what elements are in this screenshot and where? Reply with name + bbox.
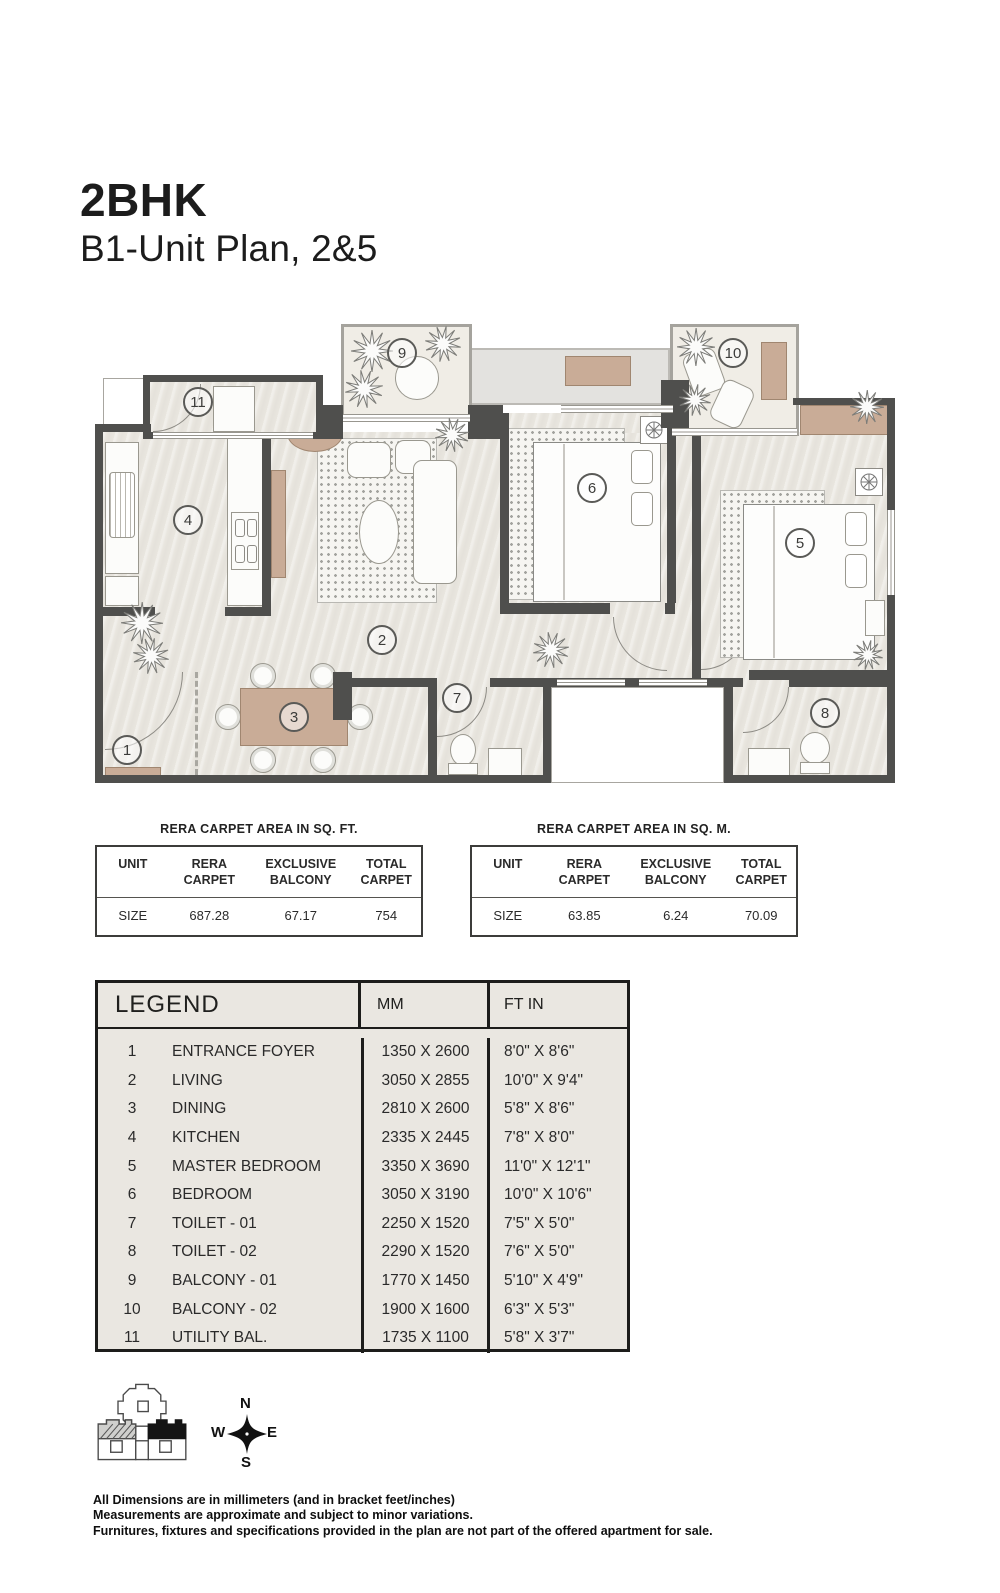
legend-row-mm: 3050 X 2855 xyxy=(361,1067,490,1096)
legend-row-number: 2 xyxy=(112,1072,152,1090)
plant-icon xyxy=(677,328,715,366)
wall-segment xyxy=(103,424,151,432)
legend-row-mm: 1770 X 1450 xyxy=(361,1267,490,1296)
wall-segment xyxy=(143,375,323,382)
legend-row: 5MASTER BEDROOM3350 X 369011'0" X 12'1" xyxy=(98,1152,627,1181)
coffee-table xyxy=(359,500,399,564)
table-row: SIZE 63.85 6.24 70.09 xyxy=(472,897,796,935)
legend-row-mm: 2810 X 2600 xyxy=(361,1095,490,1124)
room-label-9: 9 xyxy=(387,338,417,368)
cell-unit: SIZE xyxy=(97,908,169,923)
legend-row-number: 9 xyxy=(112,1272,152,1290)
legend-row-name: UTILITY BAL. xyxy=(152,1329,361,1347)
disclaimer: All Dimensions are in millimeters (and i… xyxy=(93,1493,713,1539)
hob-burner xyxy=(235,519,245,537)
legend-col-ftin: FT IN xyxy=(490,983,627,1027)
legend-row-ftin: 6'3" X 5'3" xyxy=(490,1301,627,1319)
legend-row: 10BALCONY - 021900 X 16006'3" X 5'3" xyxy=(98,1295,627,1324)
dining-chair xyxy=(250,663,276,689)
hob-burner xyxy=(235,545,245,563)
legend-row: 7TOILET - 012250 X 15207'5" X 5'0" xyxy=(98,1210,627,1239)
room-label-8: 8 xyxy=(810,698,840,728)
compass-south-label: S xyxy=(241,1454,251,1471)
wall-segment xyxy=(887,398,895,510)
col-header-unit: UNIT xyxy=(472,856,544,889)
legend-row-mm: 1900 X 1600 xyxy=(361,1295,490,1324)
legend-row-number: 11 xyxy=(112,1329,152,1347)
toilet-sink xyxy=(488,748,522,776)
disclaimer-line-3: Furnitures, fixtures and specifications … xyxy=(93,1524,713,1539)
disclaimer-line-1: All Dimensions are in millimeters (and i… xyxy=(93,1493,713,1508)
legend-row-ftin: 5'8" X 3'7" xyxy=(490,1329,627,1347)
toilet-sink xyxy=(748,748,790,778)
area-table-sqft-title: RERA CARPET AREA IN SQ. FT. xyxy=(95,822,423,836)
cell-rera-carpet: 63.85 xyxy=(544,908,626,923)
legend-row: 3DINING2810 X 26005'8" X 8'6" xyxy=(98,1095,627,1124)
legend-row: 6BEDROOM3050 X 319010'0" X 10'6" xyxy=(98,1181,627,1210)
pillow xyxy=(631,450,653,484)
legend-row-mm: 2250 X 1520 xyxy=(361,1210,490,1239)
plant-icon xyxy=(425,326,461,362)
ceiling-fan-icon xyxy=(855,468,883,496)
hob-burner xyxy=(247,545,257,563)
window xyxy=(561,405,673,413)
dining-chair xyxy=(215,704,241,730)
compass-star-icon xyxy=(225,1412,269,1456)
deck-loveseat xyxy=(565,356,631,386)
hob-burner xyxy=(247,519,257,537)
external-void xyxy=(551,687,724,783)
kitchen-hob xyxy=(231,512,259,570)
area-table-sqm-title: RERA CARPET AREA IN SQ. M. xyxy=(470,822,798,836)
legend-row: 11UTILITY BAL.1735 X 11005'8" X 3'7" xyxy=(98,1324,627,1353)
armchair xyxy=(347,442,391,478)
tv-unit xyxy=(271,470,286,578)
floor-plan-canvas: 1234567891011 xyxy=(95,320,905,790)
cell-unit: SIZE xyxy=(472,908,544,923)
legend-row-name: TOILET - 02 xyxy=(152,1243,361,1261)
wall-segment xyxy=(665,603,675,614)
legend-row-name: BALCONY - 01 xyxy=(152,1272,361,1290)
plant-icon xyxy=(435,418,469,452)
washing-machine xyxy=(213,386,255,432)
legend-row-name: BEDROOM xyxy=(152,1186,361,1204)
dining-chair xyxy=(250,747,276,773)
legend-row-mm: 2335 X 2445 xyxy=(361,1124,490,1153)
legend-row-number: 5 xyxy=(112,1158,152,1176)
room-label-4: 4 xyxy=(173,505,203,535)
room-label-1: 1 xyxy=(112,735,142,765)
legend-row-ftin: 5'10" X 4'9" xyxy=(490,1272,627,1290)
table-row: SIZE 687.28 67.17 754 xyxy=(97,897,421,935)
col-header-total-carpet: TOTAL CARPET xyxy=(351,856,421,889)
compass-west-label: W xyxy=(211,1424,225,1441)
wall-segment xyxy=(316,382,323,439)
pillow xyxy=(845,512,867,546)
legend-row-number: 7 xyxy=(112,1215,152,1233)
area-table-sqft: RERA CARPET AREA IN SQ. FT. UNIT RERA CA… xyxy=(95,822,423,937)
cell-exclusive-balcony: 6.24 xyxy=(625,908,726,923)
wall-segment xyxy=(724,678,743,687)
compass-rose: N E S W xyxy=(205,1395,291,1475)
cell-exclusive-balcony: 67.17 xyxy=(250,908,351,923)
legend-row: 2LIVING3050 X 285510'0" X 9'4" xyxy=(98,1067,627,1096)
legend-row-name: BALCONY - 02 xyxy=(152,1301,361,1319)
col-header-unit: UNIT xyxy=(97,856,169,889)
wall-segment xyxy=(692,436,701,676)
toilet-wc-tank xyxy=(448,763,478,775)
legend-row-number: 4 xyxy=(112,1129,152,1147)
toilet-wc-tank xyxy=(800,762,830,774)
plant-icon xyxy=(345,370,383,408)
col-header-total-carpet: TOTAL CARPET xyxy=(726,856,796,889)
wall-segment xyxy=(724,687,733,783)
col-header-rera-carpet: RERA CARPET xyxy=(169,856,251,889)
legend-row: 1ENTRANCE FOYER1350 X 26008'0" X 8'6" xyxy=(98,1038,627,1067)
page-subtitle: B1-Unit Plan, 2&5 xyxy=(80,228,378,270)
wall-segment xyxy=(731,775,895,783)
plant-icon xyxy=(853,640,883,670)
compass-north-label: N xyxy=(240,1395,251,1412)
window xyxy=(639,679,707,686)
legend-row-mm: 1735 X 1100 xyxy=(361,1324,490,1353)
room-label-2: 2 xyxy=(367,625,397,655)
legend-rows: 1ENTRANCE FOYER1350 X 26008'0" X 8'6"2LI… xyxy=(98,1029,627,1353)
legend-col-mm: MM xyxy=(361,983,490,1027)
wall-segment xyxy=(667,413,676,603)
cell-total-carpet: 70.09 xyxy=(726,908,796,923)
legend-row-name: LIVING xyxy=(152,1072,361,1090)
toilet-wc xyxy=(450,734,476,766)
area-table-sqm: RERA CARPET AREA IN SQ. M. UNIT RERA CAR… xyxy=(470,822,798,937)
window xyxy=(887,510,895,595)
legend-row-mm: 3050 X 3190 xyxy=(361,1181,490,1210)
legend-row-ftin: 10'0" X 9'4" xyxy=(490,1072,627,1090)
wall-segment xyxy=(543,687,551,783)
legend-row-mm: 1350 X 2600 xyxy=(361,1038,490,1067)
dining-chair xyxy=(310,747,336,773)
window xyxy=(672,428,797,436)
legend-row-ftin: 5'8" X 8'6" xyxy=(490,1100,627,1118)
window xyxy=(557,679,625,686)
blanket-line xyxy=(563,444,565,600)
col-header-rera-carpet: RERA CARPET xyxy=(544,856,626,889)
sofa xyxy=(413,460,457,584)
legend-row-name: MASTER BEDROOM xyxy=(152,1158,361,1176)
blanket-line xyxy=(773,506,775,658)
legend-row-ftin: 7'5" X 5'0" xyxy=(490,1215,627,1233)
pillow xyxy=(631,492,653,526)
legend-row-name: DINING xyxy=(152,1100,361,1118)
plant-icon xyxy=(850,390,884,424)
legend-row: 4KITCHEN2335 X 24457'8" X 8'0" xyxy=(98,1124,627,1153)
wall-segment xyxy=(887,595,895,783)
wall-segment xyxy=(428,678,437,783)
room-label-5: 5 xyxy=(785,528,815,558)
wall-segment xyxy=(468,405,503,439)
kitchen-sink xyxy=(109,472,135,538)
legend-title: LEGEND xyxy=(98,983,361,1027)
legend-row: 9BALCONY - 011770 X 14505'10" X 4'9" xyxy=(98,1267,627,1296)
nightstand xyxy=(865,600,885,636)
legend-row-name: KITCHEN xyxy=(152,1129,361,1147)
pillow xyxy=(845,554,867,588)
room-label-11: 11 xyxy=(183,387,213,417)
page-title: 2BHK xyxy=(80,176,378,224)
wall-segment xyxy=(225,607,271,616)
cell-total-carpet: 754 xyxy=(351,908,421,923)
room-label-6: 6 xyxy=(577,473,607,503)
balcony-bench xyxy=(761,342,787,400)
legend-row-ftin: 8'0" X 8'6" xyxy=(490,1043,627,1061)
plant-icon xyxy=(533,632,569,668)
legend-row-name: TOILET - 01 xyxy=(152,1215,361,1233)
plant-icon xyxy=(133,638,169,674)
legend-row-name: ENTRANCE FOYER xyxy=(152,1043,361,1061)
room-label-10: 10 xyxy=(718,338,748,368)
wall-segment xyxy=(789,678,887,687)
cell-rera-carpet: 687.28 xyxy=(169,908,251,923)
legend-row-number: 6 xyxy=(112,1186,152,1204)
legend-row-number: 8 xyxy=(112,1243,152,1261)
legend-row-number: 10 xyxy=(112,1301,152,1319)
legend-row-number: 3 xyxy=(112,1100,152,1118)
col-header-exclusive-balcony: EXCLUSIVE BALCONY xyxy=(250,856,351,889)
col-header-exclusive-balcony: EXCLUSIVE BALCONY xyxy=(625,856,726,889)
legend-row-mm: 2290 X 1520 xyxy=(361,1238,490,1267)
plant-icon xyxy=(679,384,711,416)
wall-segment xyxy=(500,413,509,605)
legend-row-ftin: 10'0" X 10'6" xyxy=(490,1186,627,1204)
wall-segment xyxy=(323,405,343,439)
legend-row-ftin: 11'0" X 12'1" xyxy=(490,1158,627,1176)
legend-row-number: 1 xyxy=(112,1043,152,1061)
service-shaft xyxy=(103,378,145,428)
room-label-3: 3 xyxy=(279,702,309,732)
wall-segment xyxy=(500,603,610,614)
wall-segment xyxy=(490,678,551,687)
wall-segment xyxy=(95,775,551,783)
wall-segment xyxy=(333,672,352,720)
toilet-wc xyxy=(800,732,830,764)
window xyxy=(153,432,313,439)
wall-segment xyxy=(262,438,271,608)
legend-table: LEGEND MM FT IN 1ENTRANCE FOYER1350 X 26… xyxy=(95,980,630,1352)
title-block: 2BHK B1-Unit Plan, 2&5 xyxy=(80,176,378,270)
legend-row: 8TOILET - 022290 X 15207'6" X 5'0" xyxy=(98,1238,627,1267)
wall-segment xyxy=(352,678,428,687)
legend-row-mm: 3350 X 3690 xyxy=(361,1152,490,1181)
key-plan-icon xyxy=(94,1380,190,1469)
foyer-partition xyxy=(195,672,198,775)
legend-row-ftin: 7'8" X 8'0" xyxy=(490,1129,627,1147)
disclaimer-line-2: Measurements are approximate and subject… xyxy=(93,1508,713,1523)
room-label-7: 7 xyxy=(442,683,472,713)
wall-segment xyxy=(95,424,103,783)
legend-row-ftin: 7'6" X 5'0" xyxy=(490,1243,627,1261)
